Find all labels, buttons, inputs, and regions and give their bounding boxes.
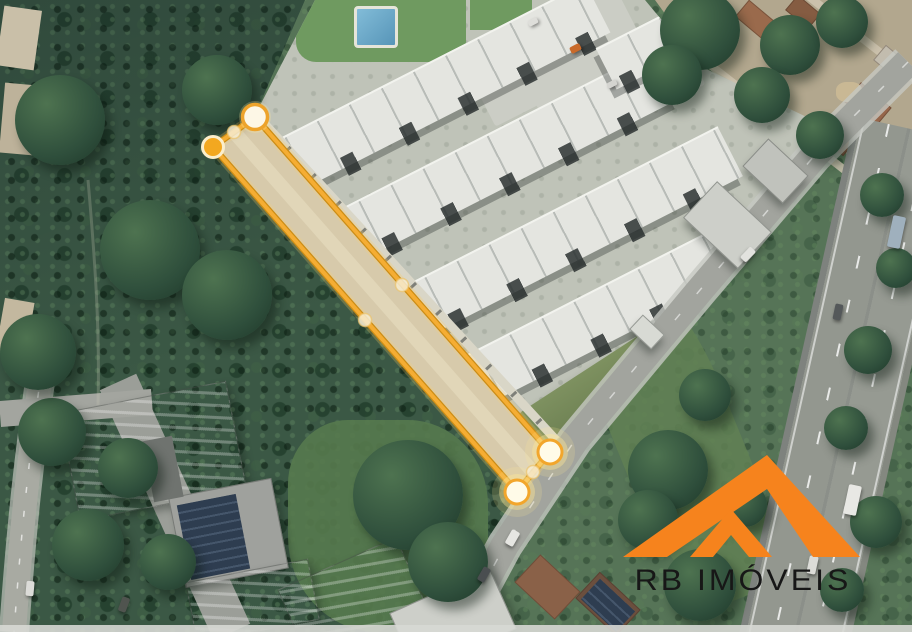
satellite-map[interactable]: RB IMÓVEIS xyxy=(0,0,912,632)
tree-blob xyxy=(140,534,196,590)
tree-blob xyxy=(734,67,790,123)
tree-blob xyxy=(796,111,844,159)
lawn xyxy=(296,0,466,62)
tree-blob xyxy=(876,248,912,288)
tree-blob xyxy=(18,398,86,466)
tree-blob xyxy=(618,490,678,550)
vehicle xyxy=(25,581,34,597)
dirt-patch xyxy=(836,82,862,102)
tree-blob xyxy=(182,250,272,340)
tree-blob xyxy=(723,483,767,527)
tree-blob xyxy=(15,75,105,165)
tree-blob xyxy=(860,173,904,217)
swimming-pool xyxy=(354,6,398,48)
tree-blob xyxy=(679,369,731,421)
tree-blob xyxy=(760,15,820,75)
tree-blob xyxy=(642,45,702,105)
tree-blob xyxy=(52,509,124,581)
tree-blob xyxy=(844,326,892,374)
bottom-wall-strip xyxy=(0,625,912,632)
tree-blob xyxy=(0,314,76,390)
tree-blob xyxy=(98,438,158,498)
tree-blob xyxy=(408,522,488,602)
tree-blob xyxy=(824,406,868,450)
brand-name: RB IMÓVEIS xyxy=(612,563,874,597)
tree-blob xyxy=(182,55,252,125)
